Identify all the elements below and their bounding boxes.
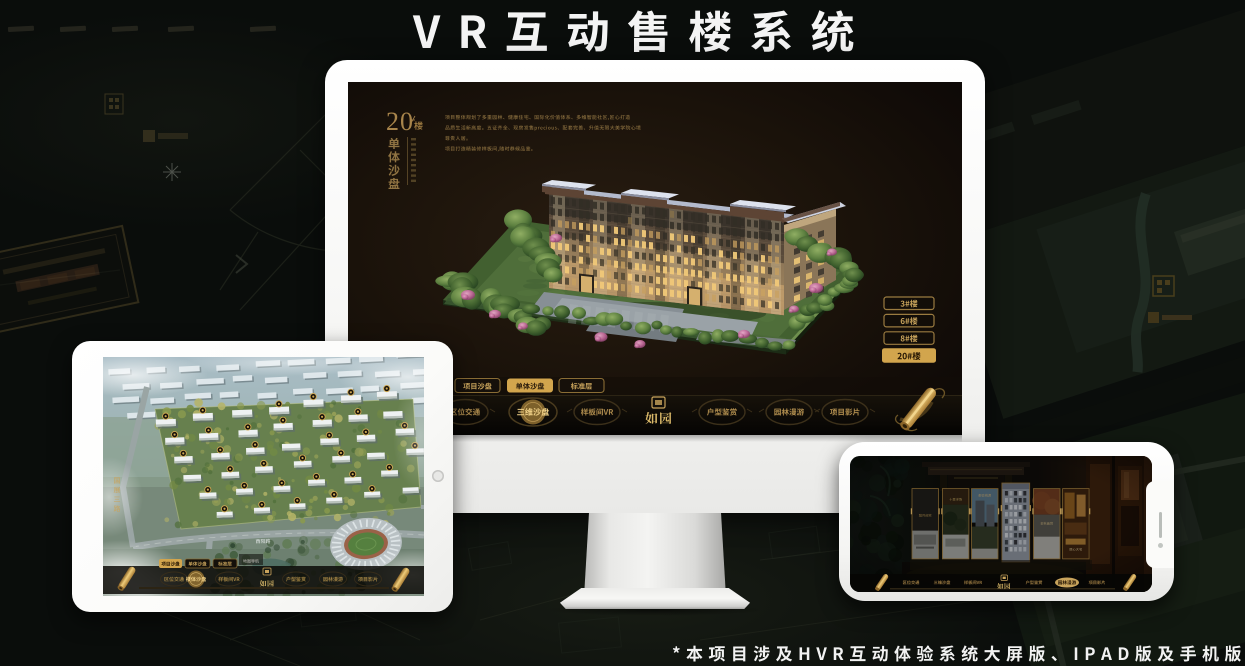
svg-text:20: 20	[386, 107, 414, 136]
